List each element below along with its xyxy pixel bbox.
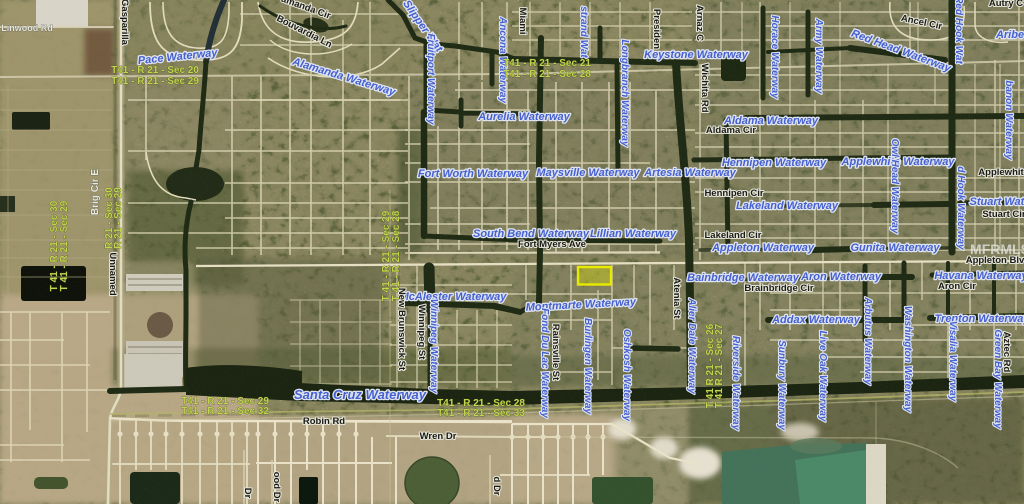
svg-text:MFRMLS: MFRMLS: [970, 241, 1024, 257]
